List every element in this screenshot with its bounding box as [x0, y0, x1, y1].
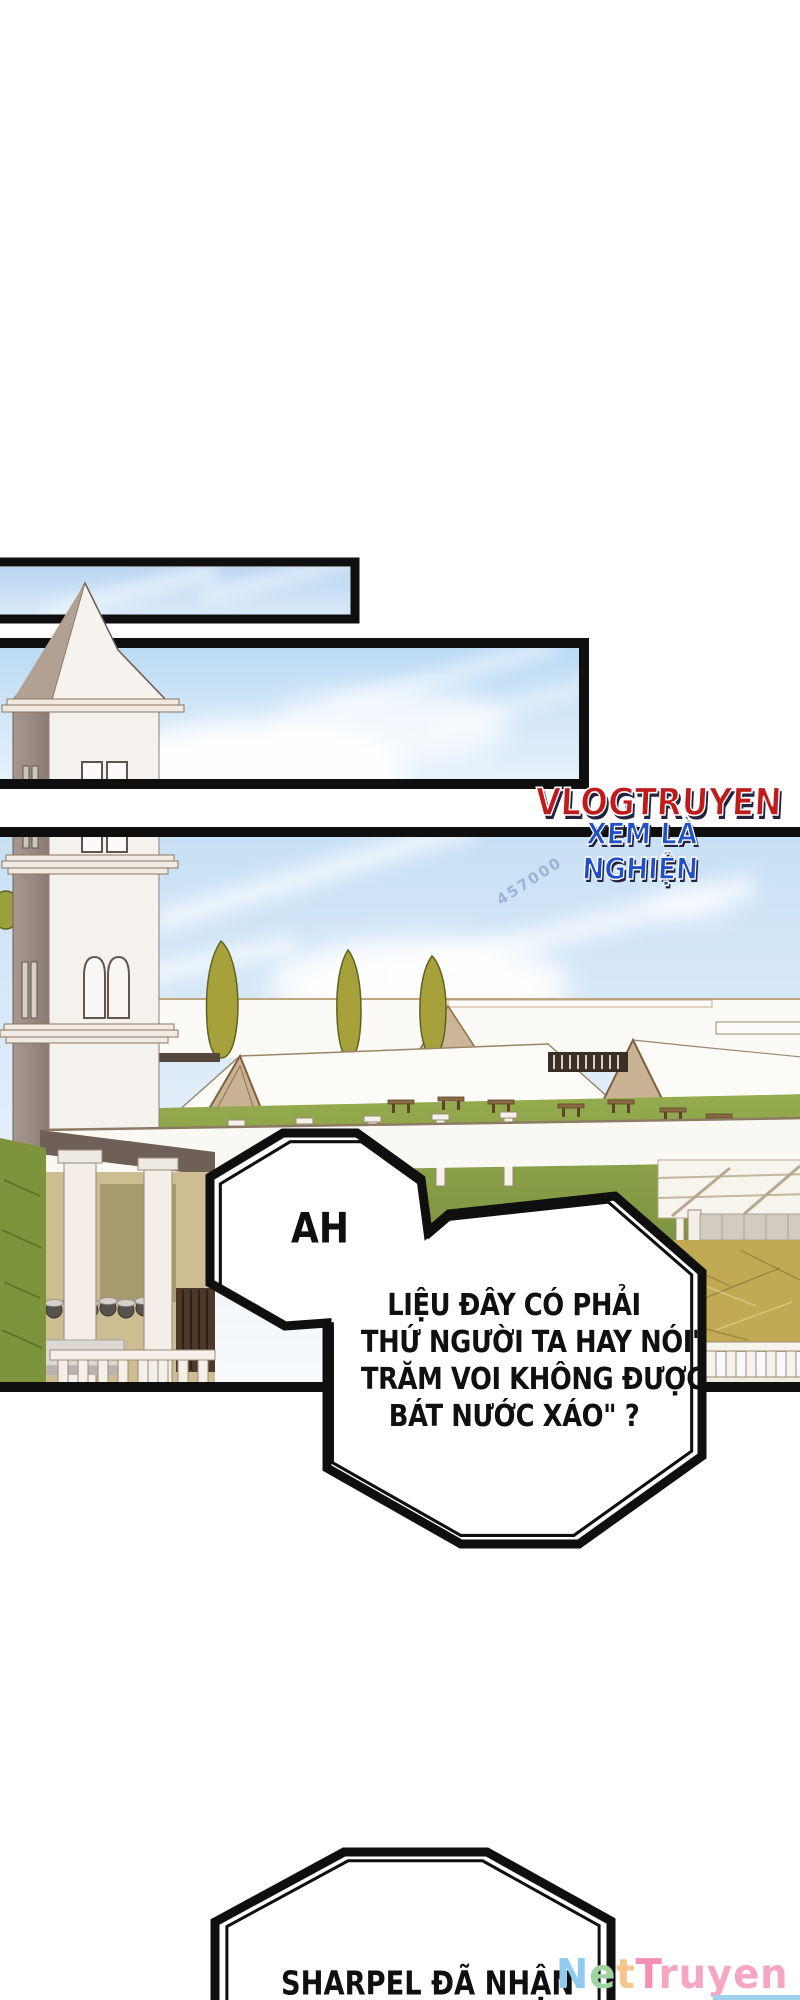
question-line-3: TRĂM VOI KHÔNG ĐƯỢC — [361, 1362, 667, 1399]
nettruyen-letter: y — [707, 1950, 733, 1998]
bubble-text-bottom: SHARPEL ĐÃ NHẬN — [281, 1965, 545, 2000]
nettruyen-letter: N — [556, 1950, 589, 1998]
question-line-2: THỨ NGƯỜI TA HAY NÓI" — [361, 1325, 667, 1362]
comic-page[interactable]: VLOGTRUYEN XEM LÀ NGHIỆN 457000 AH LIỆU … — [0, 0, 800, 2000]
nettruyen-letter: t — [616, 1950, 635, 1998]
nettruyen-letter: T — [636, 1950, 659, 1998]
site-logo-line2: XEM LÀ NGHIỆN — [528, 817, 753, 887]
nettruyen-letter: u — [679, 1950, 707, 1998]
nettruyen-letter: e — [589, 1950, 616, 1998]
bubble-text-exclaim: AH — [259, 1204, 381, 1254]
bubble-text-question: LIỆU ĐÂY CÓ PHẢI THỨ NGƯỜI TA HAY NÓI" T… — [361, 1288, 667, 1436]
nettruyen-underline — [713, 1995, 800, 2000]
nettruyen-letter: n — [760, 1950, 788, 1998]
question-line-4: BÁT NƯỚC XÁO" ? — [361, 1399, 667, 1436]
nettruyen-letter: r — [659, 1950, 679, 1998]
nettruyen-logo: NetTruyen — [556, 1950, 789, 1998]
comic-artwork — [0, 0, 800, 2000]
question-line-1: LIỆU ĐÂY CÓ PHẢI — [361, 1288, 667, 1325]
nettruyen-letter: e — [733, 1950, 760, 1998]
